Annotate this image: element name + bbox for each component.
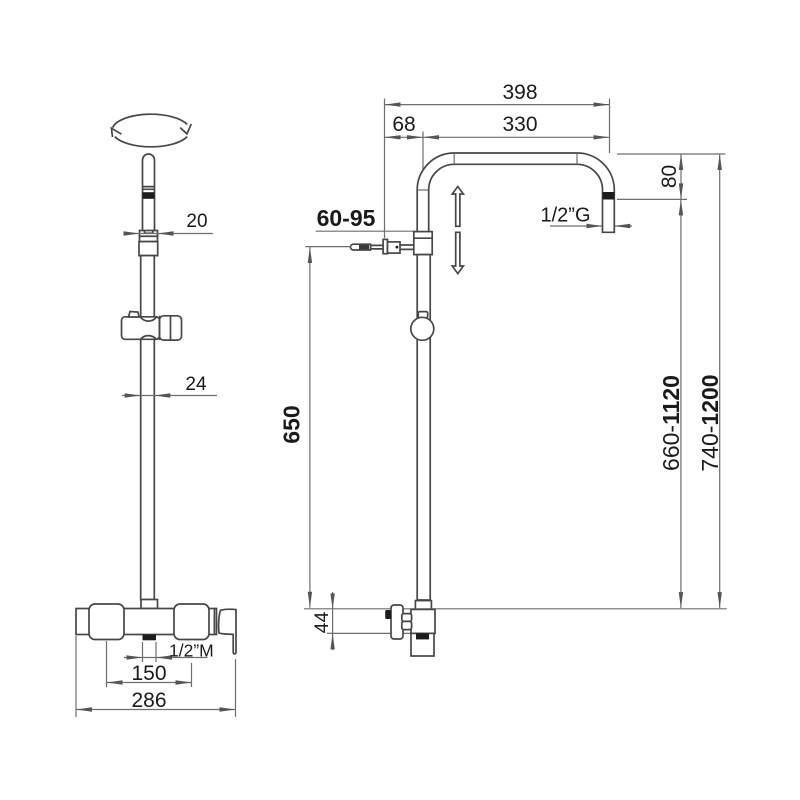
svg-text:330: 330 — [502, 113, 537, 136]
svg-text:150: 150 — [131, 662, 166, 685]
svg-text:80: 80 — [658, 165, 681, 188]
svg-text:20: 20 — [186, 211, 207, 232]
svg-text:660-1120: 660-1120 — [658, 375, 684, 471]
svg-text:44: 44 — [311, 612, 333, 634]
svg-text:68: 68 — [392, 113, 415, 136]
svg-text:24: 24 — [185, 374, 207, 395]
svg-text:398: 398 — [502, 81, 537, 104]
svg-text:650: 650 — [279, 405, 305, 443]
svg-text:286: 286 — [131, 689, 166, 712]
svg-text:1/2”M: 1/2”M — [169, 641, 214, 661]
svg-text:1/2”G: 1/2”G — [541, 204, 591, 226]
svg-text:740-1200: 740-1200 — [697, 374, 723, 471]
svg-text:60-95: 60-95 — [317, 205, 376, 231]
